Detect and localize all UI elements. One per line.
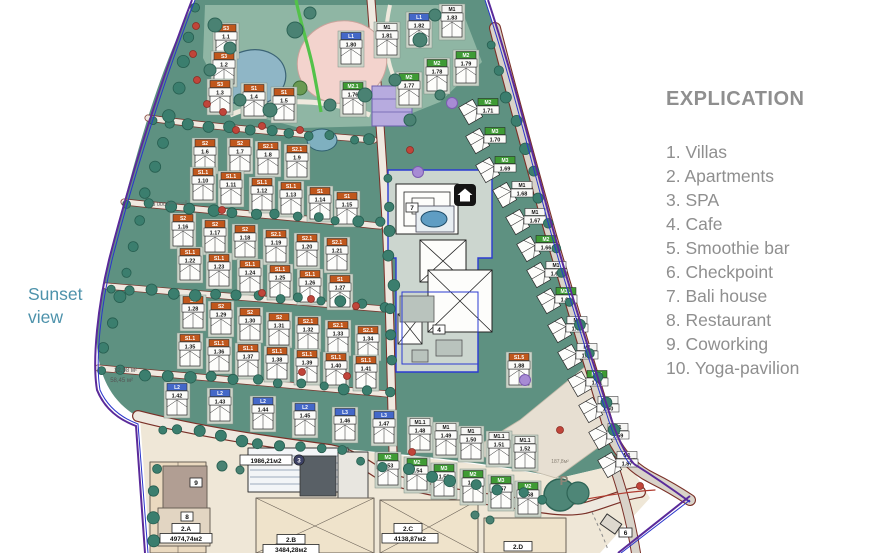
- svg-text:M2: M2: [543, 237, 550, 243]
- svg-text:L2: L2: [174, 385, 180, 391]
- svg-text:1.82: 1.82: [414, 23, 425, 29]
- svg-text:1.27: 1.27: [335, 285, 346, 291]
- park-tree: [236, 466, 244, 474]
- svg-text:M2: M2: [385, 455, 392, 461]
- hedge-tree: [163, 110, 176, 123]
- svg-text:S1.1: S1.1: [245, 262, 256, 268]
- svg-text:S2: S2: [242, 227, 248, 233]
- hedge-tree: [276, 295, 285, 304]
- svg-text:1.31: 1.31: [274, 323, 285, 329]
- hedge-tree: [384, 225, 395, 236]
- park-tree: [486, 516, 494, 524]
- hedge-tree: [153, 464, 162, 473]
- svg-text:M1: M1: [443, 425, 450, 431]
- svg-text:1.22: 1.22: [185, 258, 196, 264]
- svg-text:1.52: 1.52: [520, 446, 531, 452]
- svg-text:1.17: 1.17: [210, 230, 221, 236]
- svg-text:S1.1: S1.1: [331, 355, 342, 361]
- svg-text:1.10: 1.10: [198, 178, 209, 184]
- svg-text:1.34: 1.34: [363, 336, 375, 342]
- svg-text:1.33: 1.33: [333, 331, 344, 337]
- hedge-tree: [128, 242, 138, 252]
- legend-title: EXPLICATION: [666, 88, 804, 111]
- villa-unit: S1.11.22: [177, 247, 203, 283]
- villa-unit: M21.79: [453, 50, 479, 86]
- villa-unit: S2.11.9: [284, 144, 310, 180]
- svg-text:S1.1: S1.1: [361, 358, 372, 364]
- villa-unit: M1.11.48: [407, 417, 433, 453]
- svg-text:1.7: 1.7: [236, 149, 244, 155]
- red-tree: [409, 449, 416, 456]
- parking-label: P: [560, 473, 569, 488]
- villa-unit: S21.17: [202, 219, 228, 255]
- svg-text:S1.1: S1.1: [305, 272, 316, 278]
- svg-text:1.87: 1.87: [622, 461, 633, 467]
- svg-text:1.15: 1.15: [342, 202, 353, 208]
- svg-text:S1.1: S1.1: [286, 184, 297, 190]
- hedge-tree: [150, 161, 161, 172]
- villa-unit: M11.50: [458, 426, 484, 462]
- svg-text:M2: M2: [414, 460, 421, 466]
- hedge-tree: [471, 480, 481, 490]
- hedge-tree: [173, 82, 185, 94]
- villa-unit: S21.16: [170, 213, 196, 249]
- hedge-tree: [146, 284, 157, 295]
- villa-unit: S1.11.11: [218, 171, 244, 207]
- svg-text:2.D: 2.D: [513, 544, 523, 551]
- villa-unit: S2.11.32: [295, 316, 321, 352]
- hedge-tree: [385, 304, 395, 314]
- hedge-tree: [386, 330, 396, 340]
- red-tree: [204, 101, 211, 108]
- hedge-tree: [182, 119, 193, 130]
- legend-item: 8. Restaurant: [666, 308, 804, 332]
- hedge-tree: [338, 446, 347, 455]
- svg-text:M2: M2: [406, 75, 413, 81]
- svg-text:S1.1: S1.1: [302, 352, 313, 358]
- red-tree: [190, 51, 197, 58]
- svg-text:S1.1: S1.1: [243, 346, 254, 352]
- hedge-tree: [162, 371, 173, 382]
- villa-unit: S1.11.12: [249, 177, 275, 213]
- hedge-tree: [125, 286, 134, 295]
- explication-legend: EXPLICATION 1. Villas2. Apartments3. SPA…: [666, 88, 804, 380]
- svg-text:1.68: 1.68: [517, 191, 528, 197]
- svg-text:1.66: 1.66: [541, 245, 552, 251]
- hedge-tree: [184, 203, 195, 214]
- hedge-tree: [211, 289, 221, 299]
- villa-unit: L21.42: [164, 382, 190, 418]
- red-tree: [299, 369, 306, 376]
- legend-item: 2. Apartments: [666, 164, 804, 188]
- hedge-tree: [177, 55, 189, 67]
- red-tree: [557, 427, 564, 434]
- svg-text:S1.1: S1.1: [275, 267, 286, 273]
- svg-text:S1.1: S1.1: [214, 256, 225, 262]
- svg-text:1.8: 1.8: [264, 152, 272, 158]
- svg-text:1.28: 1.28: [188, 306, 199, 312]
- svg-text:L2: L2: [260, 399, 266, 405]
- svg-text:1.29: 1.29: [216, 312, 227, 318]
- red-tree: [407, 147, 414, 154]
- svg-text:M3: M3: [498, 478, 505, 484]
- red-tree: [233, 127, 240, 134]
- villa-unit: L31.47: [371, 410, 397, 446]
- svg-text:1.6: 1.6: [201, 149, 209, 155]
- svg-text:1.43: 1.43: [215, 399, 226, 405]
- svg-text:L2: L2: [217, 391, 223, 397]
- hedge-tree: [494, 66, 503, 75]
- hedge-tree: [353, 216, 364, 227]
- hedge-tree: [304, 132, 313, 141]
- hedge-tree: [538, 495, 547, 504]
- purple-tree: [413, 167, 424, 178]
- hedge-tree: [168, 288, 179, 299]
- svg-text:1.26: 1.26: [305, 280, 316, 286]
- svg-text:S1.1: S1.1: [214, 341, 225, 347]
- villa-unit: S21.30: [237, 307, 263, 343]
- legend-item: 7. Bali house: [666, 284, 804, 308]
- svg-text:1.3: 1.3: [216, 90, 224, 96]
- hedge-tree: [148, 535, 160, 547]
- svg-text:1.18: 1.18: [240, 235, 251, 241]
- red-tree: [219, 207, 226, 214]
- villa-unit: S2.11.33: [325, 320, 351, 356]
- hedge-tree: [208, 205, 220, 217]
- svg-text:1.24: 1.24: [245, 270, 257, 276]
- villa-unit: S1.11.35: [177, 333, 203, 369]
- svg-text:1.51: 1.51: [494, 442, 505, 448]
- svg-text:M2: M2: [470, 472, 477, 478]
- hedge-tree: [147, 512, 159, 524]
- svg-text:1.13: 1.13: [286, 192, 297, 198]
- red-tree: [220, 109, 227, 116]
- svg-text:1.69: 1.69: [500, 166, 511, 172]
- legend-item: 3. SPA: [666, 188, 804, 212]
- villa-unit: S21.7: [227, 138, 253, 174]
- villa-unit: S21.18: [232, 224, 258, 260]
- svg-text:3: 3: [297, 458, 301, 465]
- svg-text:1.46: 1.46: [340, 418, 351, 424]
- park-tree: [413, 33, 427, 47]
- svg-text:L2: L2: [302, 405, 308, 411]
- svg-text:1.42: 1.42: [172, 393, 183, 399]
- hedge-tree: [383, 250, 394, 261]
- svg-text:M3: M3: [502, 158, 509, 164]
- svg-text:1.25: 1.25: [275, 275, 286, 281]
- park-tree: [471, 511, 479, 519]
- red-tree: [297, 127, 304, 134]
- svg-text:1.80: 1.80: [346, 42, 357, 48]
- x-roof-building-b: [428, 270, 492, 332]
- svg-text:1.47: 1.47: [379, 421, 390, 427]
- hedge-tree: [267, 126, 277, 136]
- svg-text:1.44: 1.44: [258, 407, 270, 413]
- svg-text:4974,74м2: 4974,74м2: [170, 536, 202, 543]
- sunset-line2: view: [28, 306, 82, 329]
- svg-text:8: 8: [185, 514, 189, 521]
- hedge-tree: [158, 137, 169, 148]
- svg-text:S1.1: S1.1: [185, 336, 196, 342]
- svg-text:M1.1: M1.1: [493, 434, 504, 440]
- svg-text:1.37: 1.37: [243, 354, 254, 360]
- checkpoint-chip: 6: [619, 528, 632, 537]
- villa-unit: M21.78: [424, 58, 450, 94]
- park-tree: [234, 94, 246, 106]
- home-icon: [454, 184, 476, 206]
- hedge-tree: [215, 430, 226, 441]
- svg-text:9: 9: [194, 480, 198, 487]
- dim-3000-label: 3 000: [152, 202, 166, 208]
- svg-text:1.45: 1.45: [300, 413, 311, 419]
- villa-unit: M1.11.51: [486, 431, 512, 467]
- svg-text:S3: S3: [217, 82, 223, 88]
- svg-text:S1.1: S1.1: [185, 250, 196, 256]
- hedge-tree: [487, 41, 495, 49]
- purple-tree: [447, 98, 458, 109]
- svg-text:1986,21м2: 1986,21м2: [251, 458, 282, 465]
- hedge-tree: [135, 216, 145, 226]
- svg-text:1.19: 1.19: [271, 240, 282, 246]
- villa-unit: L31.46: [332, 407, 358, 443]
- park-tree: [429, 9, 441, 21]
- villa-unit: L11.80: [338, 31, 364, 67]
- red-tree: [353, 303, 360, 310]
- hedge-tree: [253, 375, 263, 385]
- hedge-tree: [427, 471, 438, 482]
- red-tree: [259, 123, 266, 130]
- svg-text:4: 4: [437, 327, 441, 334]
- legend-item: 10. Yoga-pavilion: [666, 356, 804, 380]
- hedge-tree: [252, 439, 262, 449]
- svg-text:6: 6: [624, 530, 628, 537]
- hedge-tree: [403, 463, 414, 474]
- site-plan-page: S31.1S31.2S31.3S11.4S11.5S21.6S21.7S2.11…: [0, 0, 880, 553]
- svg-text:S2.1: S2.1: [271, 232, 282, 238]
- svg-text:1.67: 1.67: [530, 218, 541, 224]
- spa-pond: [421, 211, 447, 227]
- hedge-tree: [231, 290, 241, 300]
- villa-unit: S2.11.21: [324, 237, 350, 273]
- svg-text:S2: S2: [237, 141, 243, 147]
- svg-text:S1: S1: [281, 90, 287, 96]
- svg-text:1.48: 1.48: [415, 428, 426, 434]
- restaurant-chip: 8: [181, 512, 193, 521]
- villa-unit: S1.11.36: [206, 338, 232, 374]
- svg-text:L1: L1: [416, 15, 422, 21]
- svg-text:1.50: 1.50: [466, 437, 477, 443]
- hedge-tree: [387, 355, 397, 365]
- svg-text:S2.1: S2.1: [363, 328, 374, 334]
- hedge-tree: [206, 371, 216, 381]
- hedge-tree: [314, 213, 323, 222]
- svg-text:1.4: 1.4: [250, 94, 259, 100]
- sunset-line1: Sunset: [28, 283, 82, 306]
- coworking-chip: 9: [190, 478, 202, 487]
- svg-text:S1.1: S1.1: [272, 349, 283, 355]
- svg-text:1.23: 1.23: [214, 264, 225, 270]
- hedge-tree: [293, 212, 302, 221]
- svg-text:M2: M2: [463, 53, 470, 59]
- legend-item: 6. Checkpoint: [666, 260, 804, 284]
- hedge-tree: [194, 425, 205, 436]
- park-tree: [304, 7, 316, 19]
- svg-text:1.78: 1.78: [432, 69, 443, 75]
- svg-text:S1: S1: [251, 86, 257, 92]
- villa-unit: S1.11.10: [190, 167, 216, 203]
- svg-text:S2: S2: [212, 222, 218, 228]
- svg-text:M1: M1: [532, 210, 539, 216]
- legend-item: 5. Smoothie bar: [666, 236, 804, 260]
- hedge-tree: [500, 92, 511, 103]
- svg-text:L1: L1: [348, 34, 354, 40]
- villa-unit: S1.11.37: [235, 343, 261, 379]
- hedge-tree: [317, 444, 326, 453]
- svg-text:1.49: 1.49: [441, 433, 452, 439]
- red-tree: [637, 483, 644, 490]
- svg-text:S2: S2: [276, 315, 282, 321]
- svg-text:1.70: 1.70: [490, 137, 501, 143]
- svg-text:2.B: 2.B: [286, 537, 296, 544]
- area-small-1: 32,98 м²: [114, 368, 137, 374]
- legend-item: 4. Cafe: [666, 212, 804, 236]
- svg-text:1.81: 1.81: [382, 33, 393, 39]
- svg-text:1.41: 1.41: [361, 366, 372, 372]
- svg-text:S2: S2: [180, 216, 186, 222]
- hedge-tree: [172, 425, 181, 434]
- svg-text:3484,28м2: 3484,28м2: [275, 547, 307, 553]
- villa-unit: S2.11.19: [263, 229, 289, 265]
- hedge-tree: [357, 457, 365, 465]
- svg-text:S2.1: S2.1: [302, 236, 313, 242]
- svg-text:1.39: 1.39: [302, 360, 313, 366]
- villa-unit: S1.11.24: [237, 259, 263, 295]
- svg-text:1.11: 1.11: [226, 182, 236, 188]
- hedge-tree: [284, 129, 294, 139]
- svg-text:S2: S2: [202, 141, 208, 147]
- svg-text:1.35: 1.35: [185, 344, 196, 350]
- hedge-tree: [492, 485, 502, 495]
- svg-text:S2: S2: [247, 310, 253, 316]
- park-tree: [263, 103, 277, 117]
- hedge-tree: [270, 209, 280, 219]
- svg-text:M1: M1: [553, 263, 560, 269]
- hedge-tree: [183, 32, 193, 42]
- park-tree: [389, 74, 401, 86]
- hedge-tree: [317, 297, 325, 305]
- svg-text:S1: S1: [344, 194, 350, 200]
- red-tree: [344, 373, 351, 380]
- villa-unit: M11.49: [433, 422, 459, 458]
- svg-text:2.A: 2.A: [181, 526, 191, 533]
- hedge-tree: [114, 291, 126, 303]
- svg-text:S2.1: S2.1: [292, 147, 303, 153]
- park-tree: [358, 88, 372, 102]
- svg-text:M1.1: M1.1: [414, 420, 425, 426]
- svg-text:M2.1: M2.1: [347, 84, 358, 90]
- hedge-tree: [385, 202, 394, 211]
- svg-text:1.40: 1.40: [331, 363, 342, 369]
- area-small-2: 58,45 м²: [110, 378, 133, 384]
- hedge-tree: [122, 268, 131, 277]
- svg-text:2.C: 2.C: [403, 526, 413, 533]
- legend-item: 9. Coworking: [666, 332, 804, 356]
- villa-unit: L21.44: [250, 396, 276, 432]
- hedge-tree: [185, 372, 197, 384]
- park-tree: [324, 99, 336, 111]
- svg-text:S3: S3: [223, 26, 229, 32]
- villa-unit: S1.11.38: [264, 346, 290, 382]
- hedge-tree: [166, 201, 177, 212]
- svg-text:1.2: 1.2: [220, 62, 228, 68]
- villa-unit: S1.11.13: [278, 181, 304, 217]
- building-2d-label: 2.D: [504, 542, 532, 552]
- hedge-tree: [159, 426, 167, 434]
- hedge-tree: [274, 441, 284, 451]
- hedge-tree: [384, 174, 392, 182]
- hedge-tree: [338, 384, 349, 395]
- svg-text:S2.1: S2.1: [263, 144, 274, 150]
- hedge-tree: [335, 296, 346, 307]
- hedge-tree: [203, 121, 214, 132]
- svg-text:S2: S2: [218, 304, 224, 310]
- svg-text:1.20: 1.20: [302, 244, 313, 250]
- hedge-tree: [189, 290, 201, 302]
- hedge-tree: [228, 374, 238, 384]
- svg-text:M1: M1: [468, 429, 475, 435]
- svg-text:S1.1: S1.1: [257, 180, 268, 186]
- bali-chip: 7: [406, 203, 418, 212]
- park-tree: [204, 64, 216, 76]
- legend-item: 1. Villas: [666, 140, 804, 164]
- villa-unit: S2.11.20: [294, 233, 320, 269]
- svg-text:1.38: 1.38: [272, 357, 283, 363]
- hedge-tree: [378, 462, 387, 471]
- svg-text:M3: M3: [441, 466, 448, 472]
- villa-unit: M1.11.52: [512, 435, 538, 471]
- svg-text:1.1: 1.1: [222, 34, 230, 40]
- villa-unit: M21.54: [404, 457, 430, 493]
- hedge-tree: [364, 134, 375, 145]
- svg-text:M1.1: M1.1: [519, 438, 530, 444]
- villa-unit: M11.81: [374, 22, 400, 58]
- hedge-tree: [251, 209, 261, 219]
- legend-list: 1. Villas2. Apartments3. SPA4. Cafe5. Sm…: [666, 140, 804, 380]
- park-tree: [287, 22, 303, 38]
- hedge-tree: [331, 217, 339, 225]
- svg-text:1.83: 1.83: [447, 15, 458, 21]
- svg-text:1.76: 1.76: [348, 92, 359, 98]
- svg-text:M1: M1: [449, 7, 456, 13]
- coworking-building: [163, 466, 207, 512]
- park-tree: [435, 90, 445, 100]
- villa-unit: S2.11.8: [255, 141, 281, 177]
- svg-text:M1: M1: [384, 25, 391, 31]
- hedge-tree: [320, 382, 328, 390]
- svg-text:S3: S3: [221, 54, 227, 60]
- red-tree: [194, 77, 201, 84]
- cafe-complex: [400, 296, 434, 322]
- sunset-view-note: Sunset view: [28, 283, 82, 329]
- hedge-tree: [140, 188, 151, 199]
- svg-text:L3: L3: [381, 413, 387, 419]
- park-tree: [224, 42, 236, 54]
- hedge-tree: [376, 217, 385, 226]
- park-tree: [208, 18, 222, 32]
- svg-text:1.5: 1.5: [280, 98, 288, 104]
- svg-text:1.14: 1.14: [315, 197, 327, 203]
- svg-text:S1.5: S1.5: [514, 355, 525, 361]
